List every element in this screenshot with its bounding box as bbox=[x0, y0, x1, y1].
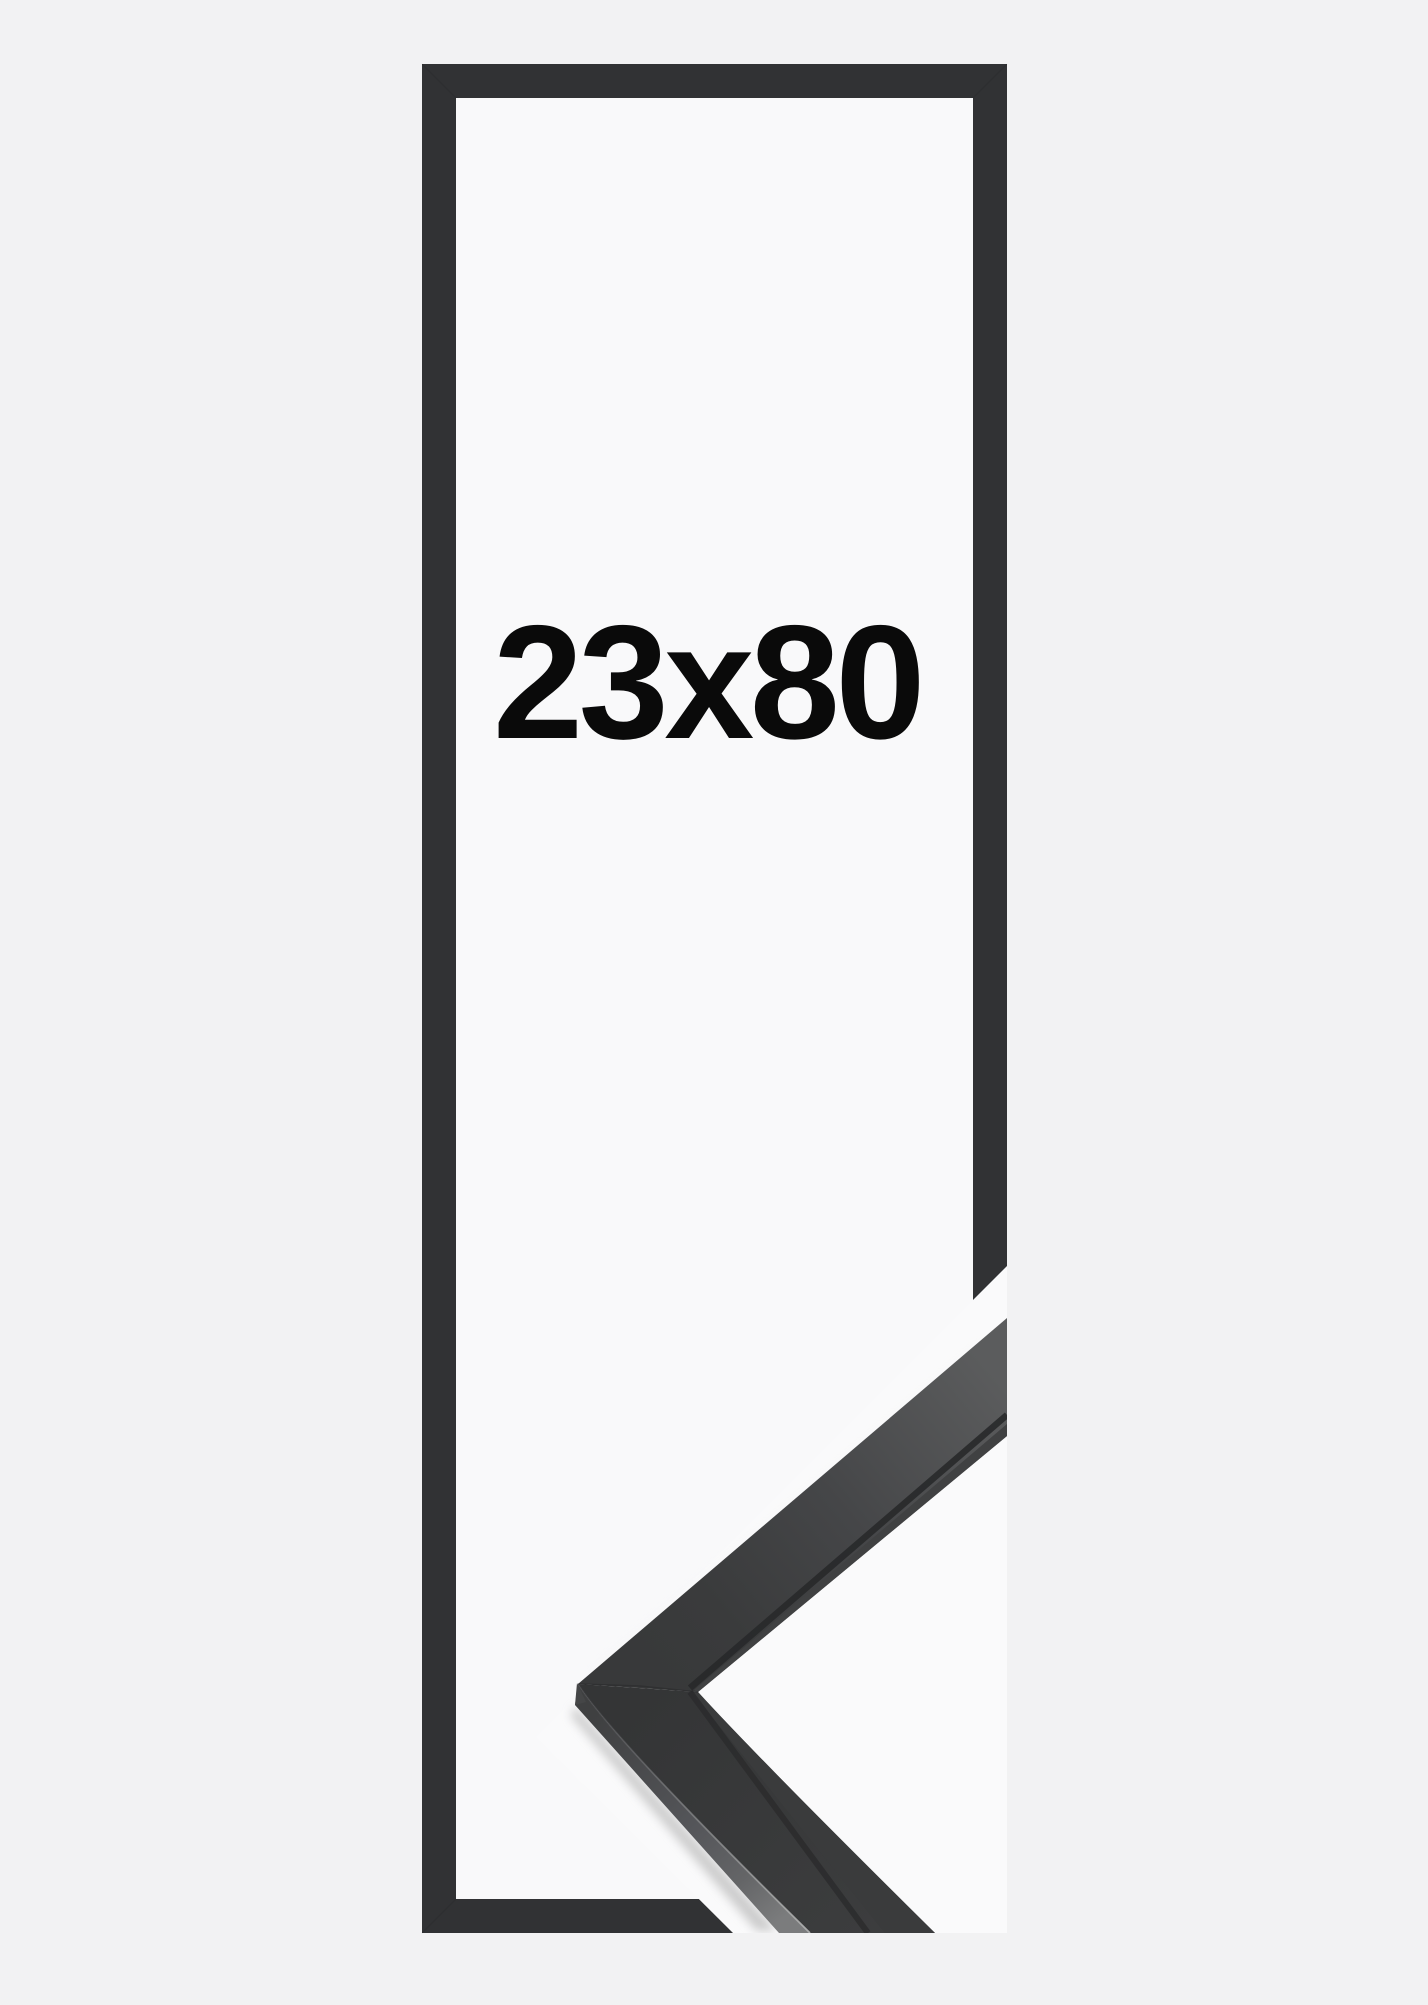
svg-text:23x80: 23x80 bbox=[493, 592, 921, 773]
